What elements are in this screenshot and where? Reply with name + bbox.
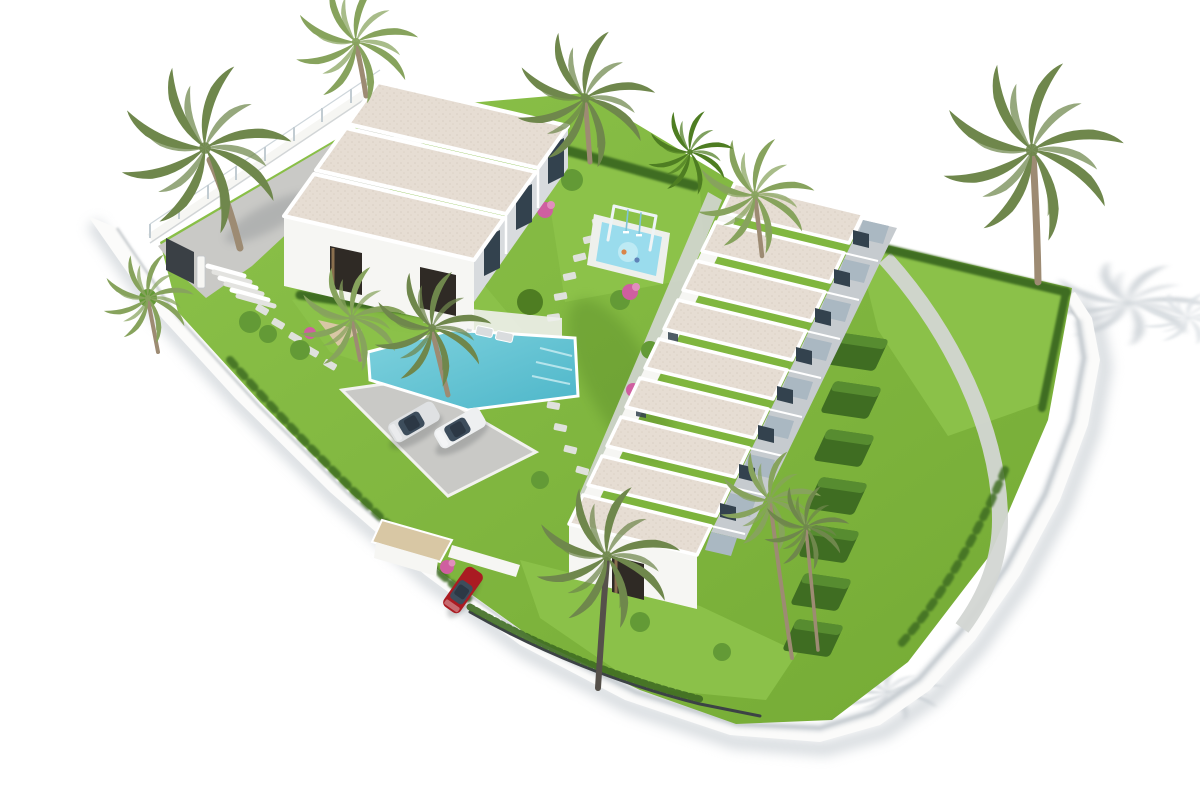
site-plan-render <box>0 0 1200 800</box>
figure <box>634 257 639 262</box>
gate-pillar <box>197 256 205 288</box>
render-canvas <box>0 0 1200 800</box>
palm-tree <box>942 58 1124 282</box>
figure <box>621 249 626 254</box>
